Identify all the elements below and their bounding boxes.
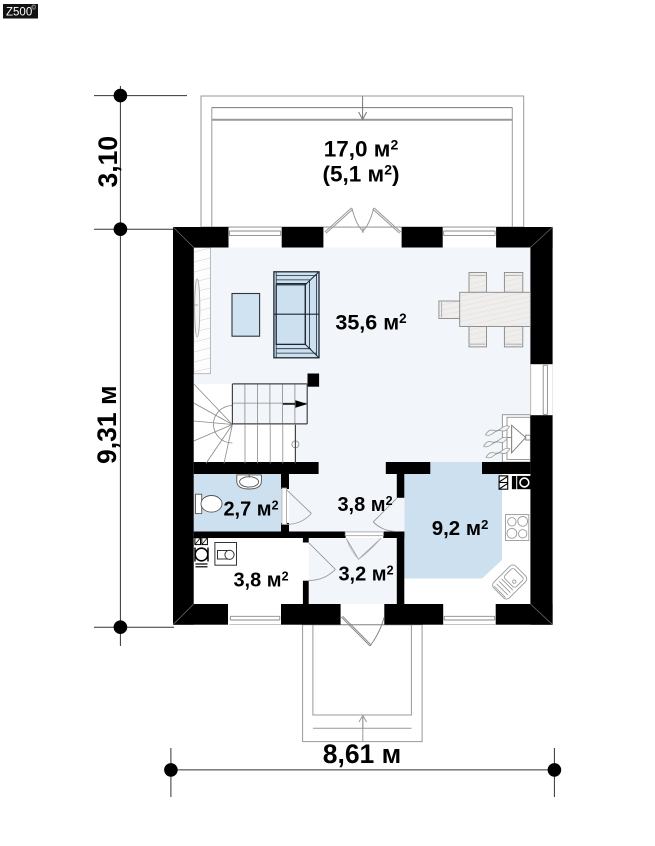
svg-text:9,2 м2: 9,2 м2 [432,517,489,540]
svg-text:3,2 м2: 3,2 м2 [338,564,393,586]
svg-text:Z500: Z500 [6,7,32,19]
svg-text:8,61 м: 8,61 м [323,739,402,769]
svg-text:©: © [32,5,37,12]
svg-text:9,31 м: 9,31 м [92,385,122,464]
svg-text:3,8 м2: 3,8 м2 [337,494,392,516]
svg-text:3,10: 3,10 [93,136,123,188]
svg-text:35,6 м2: 35,6 м2 [335,310,406,334]
svg-text:2,7 м2: 2,7 м2 [223,499,278,521]
svg-text:17,0 м2: 17,0 м2 [324,136,399,161]
svg-text:3,8 м2: 3,8 м2 [233,570,288,592]
